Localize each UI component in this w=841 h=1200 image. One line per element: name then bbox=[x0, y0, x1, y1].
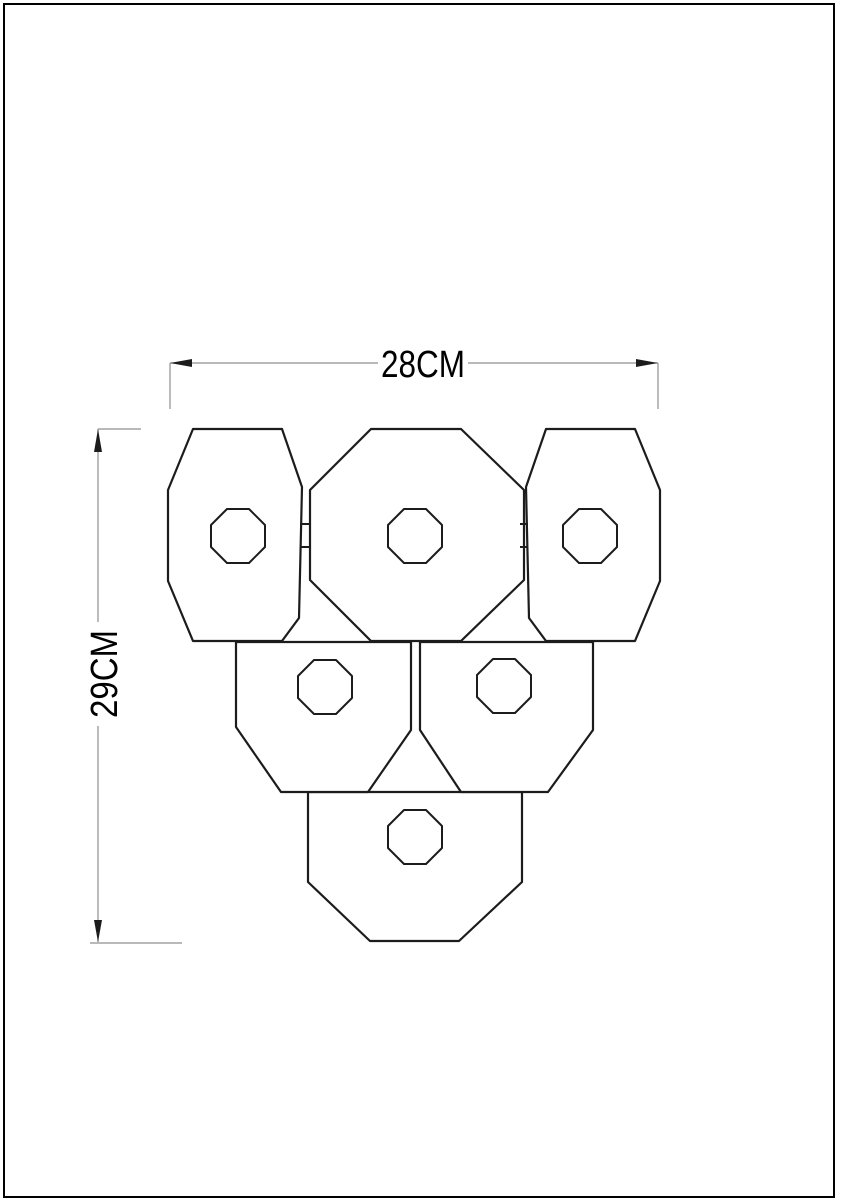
width-dimension-label: 28CM bbox=[381, 344, 465, 386]
hole-top-left bbox=[211, 509, 265, 563]
hole-middle-right bbox=[477, 659, 531, 713]
hole-top-center bbox=[388, 509, 442, 563]
hole-top-right bbox=[563, 509, 617, 563]
arrow-right bbox=[636, 359, 658, 367]
dimension-drawing-page: 28CM 29CM bbox=[0, 0, 841, 1200]
arrow-left bbox=[170, 359, 192, 367]
arrow-down bbox=[94, 920, 102, 942]
hole-bottom bbox=[388, 810, 442, 864]
height-dimension-label: 29CM bbox=[84, 630, 126, 718]
arrow-up bbox=[94, 429, 102, 452]
hole-middle-left bbox=[298, 660, 352, 714]
octagon-lamp-dimension-diagram: 28CM 29CM bbox=[0, 0, 841, 1200]
